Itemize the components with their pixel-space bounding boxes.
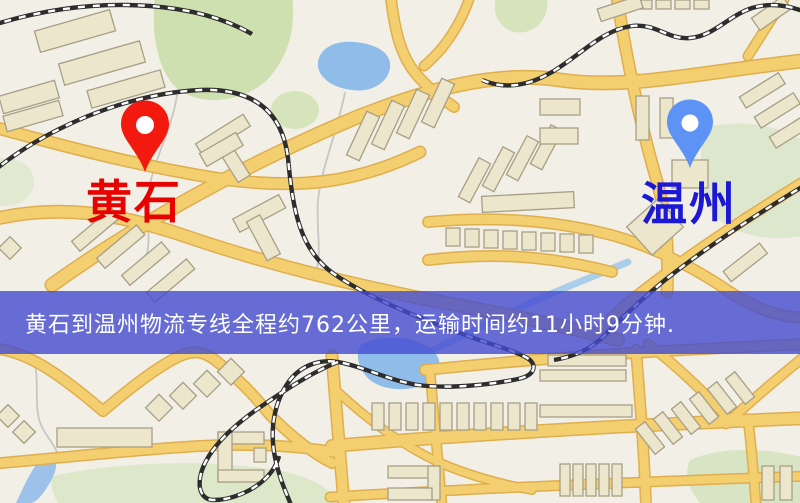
route-info-text: 黄石到温州物流专线全程约762公里，运输时间约11小时9分钟.: [25, 307, 675, 339]
route-info-banner: 黄石到温州物流专线全程约762公里，运输时间约11小时9分钟.: [0, 291, 800, 354]
logistics-route-map-image: 黄石 温州 黄石到温州物流专线全程约762公里，运输时间约11小时9分钟.: [0, 0, 800, 503]
destination-city-label: 温州: [641, 181, 737, 227]
origin-city-label: 黄石: [86, 179, 182, 225]
map-canvas: [0, 0, 800, 503]
